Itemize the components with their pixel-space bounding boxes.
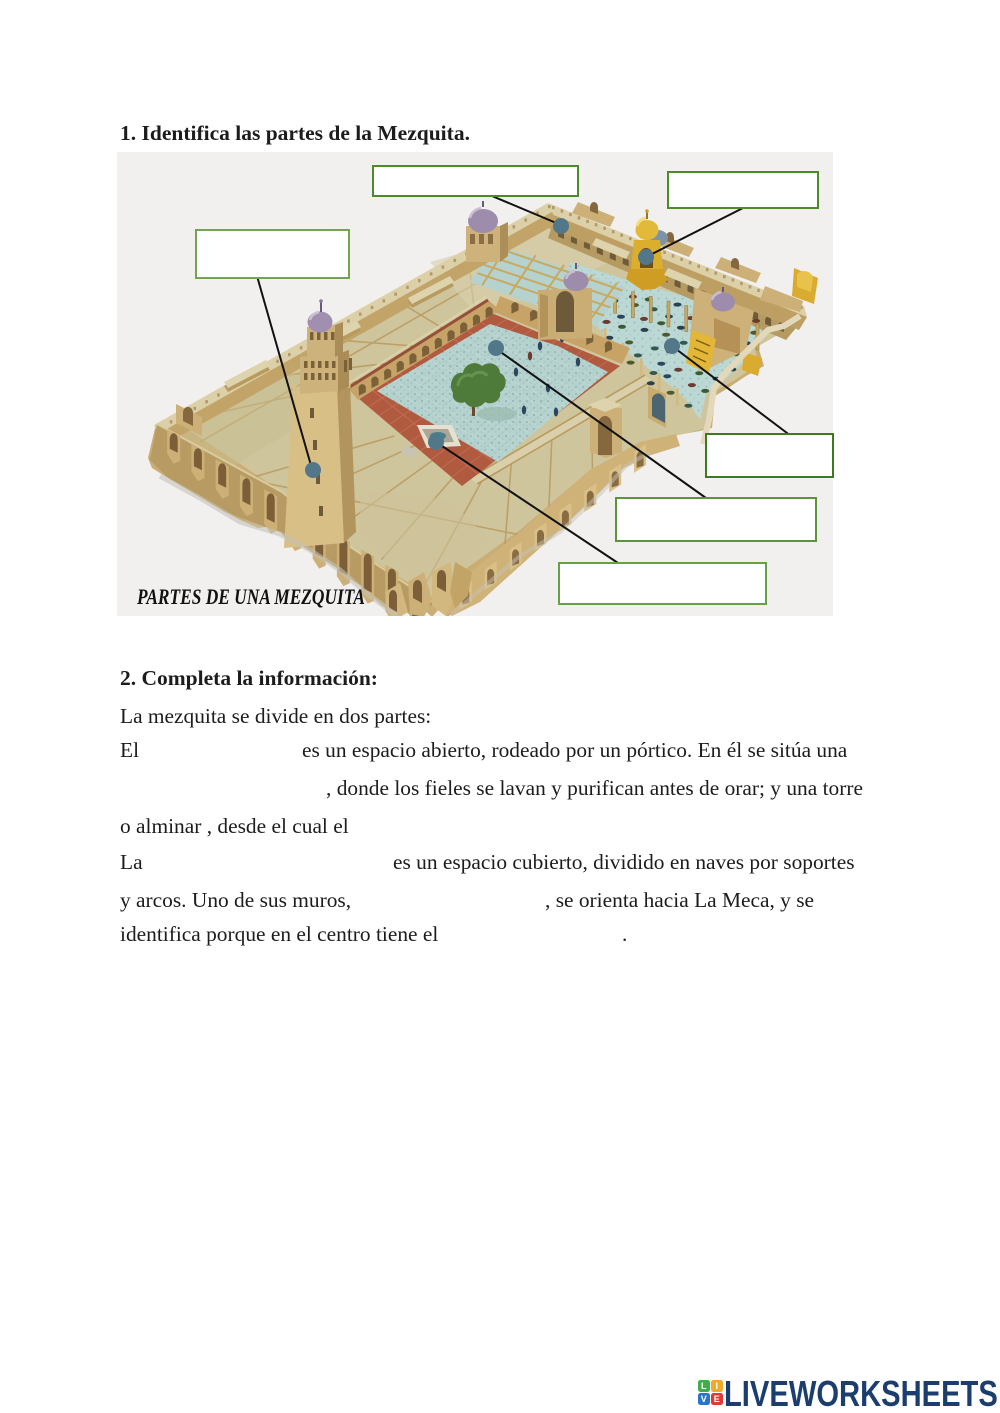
svg-text:PARTES DE UNA MEZQUITA: PARTES DE UNA MEZQUITA [136, 584, 365, 609]
